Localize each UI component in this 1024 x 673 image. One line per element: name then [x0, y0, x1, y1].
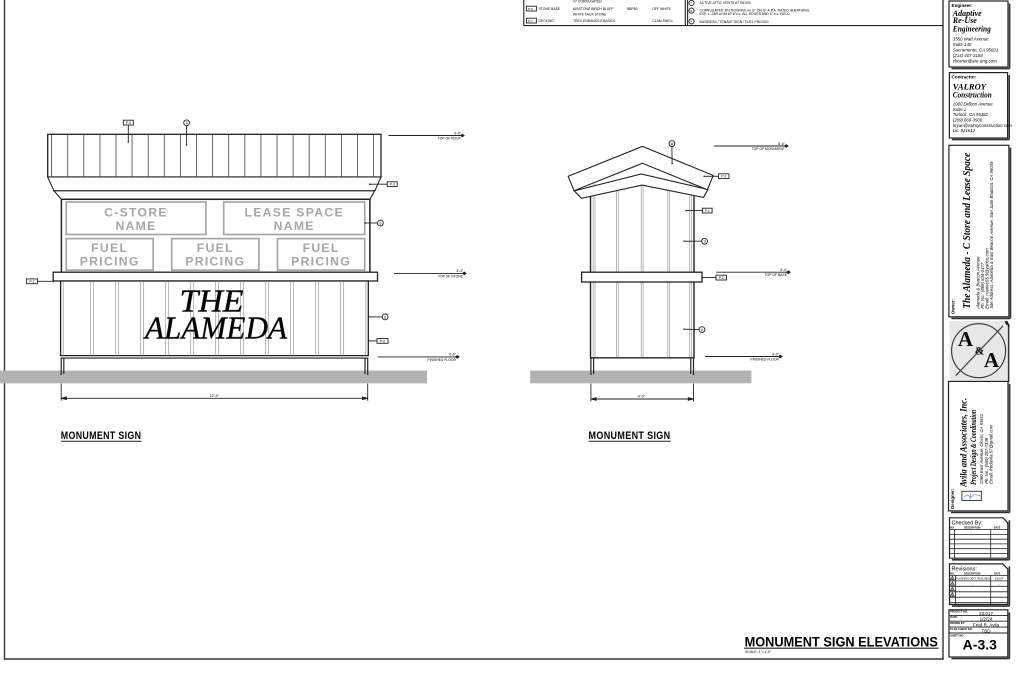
- svg-text:Email: fredavila.57@gmail.com: Email: fredavila.57@gmail.com: [989, 424, 994, 484]
- svg-text:DESCRIPTION: DESCRIPTION: [964, 527, 981, 530]
- svg-text:23.017: 23.017: [979, 611, 993, 616]
- svg-text:The Alameda - C Store and Leas: The Alameda - C Store and Lease Space: [962, 153, 973, 309]
- svg-text:STONE BASE: STONE BASE: [539, 7, 561, 11]
- svg-text:½" CORRUGATED: ½" CORRUGATED: [573, 0, 602, 4]
- svg-text:FINISHED FLOOR: FINISHED FLOOR: [751, 357, 780, 361]
- svg-text:P-1: P-1: [705, 209, 710, 213]
- svg-text:-: -: [999, 583, 1000, 586]
- svg-text:Fred R. Avila: Fred R. Avila: [973, 623, 1000, 628]
- svg-text:NO.: NO.: [950, 527, 955, 530]
- svg-text:Contractor:: Contractor:: [952, 75, 977, 80]
- svg-text:OFF WHITE: OFF WHITE: [652, 7, 671, 11]
- svg-text:Lic. 921612: Lic. 921612: [953, 128, 976, 133]
- svg-text:NAME: NAME: [115, 219, 156, 233]
- svg-text:-: -: [952, 532, 953, 535]
- svg-text:7: 7: [690, 1, 692, 5]
- svg-text:DRAWN BY:: DRAWN BY:: [950, 621, 965, 625]
- svg-text:-: -: [971, 532, 972, 535]
- svg-text:3550 Watt Avenue: 3550 Watt Avenue: [953, 36, 989, 41]
- svg-text:TREX ENHANCED BASICS: TREX ENHANCED BASICS: [573, 19, 616, 23]
- svg-text:FUEL: FUEL: [303, 241, 340, 255]
- svg-text:3'-4": 3'-4": [456, 269, 464, 273]
- svg-text:PROJECT NO.: PROJECT NO.: [950, 609, 968, 613]
- svg-text:9: 9: [379, 221, 381, 225]
- svg-text:(214) 407-3184: (214) 407-3184: [953, 53, 984, 58]
- svg-text:12'-0": 12'-0": [210, 394, 220, 398]
- svg-text:P-6: P-6: [528, 7, 533, 11]
- svg-text:Engineer:: Engineer:: [952, 3, 974, 8]
- svg-text:FINISHED FLOOR: FINISHED FLOOR: [428, 358, 457, 362]
- svg-text:LEASE SPACE: LEASE SPACE: [244, 206, 343, 220]
- svg-text:Construction: Construction: [953, 89, 992, 99]
- svg-text:6: 6: [701, 328, 703, 332]
- svg-text:DECKING: DECKING: [539, 19, 555, 23]
- svg-text:TBD: TBD: [981, 628, 991, 633]
- svg-text:P-2: P-2: [719, 276, 724, 280]
- svg-text:A-3.3: A-3.3: [963, 636, 997, 652]
- svg-text:-: -: [973, 583, 974, 586]
- svg-text:P-2: P-2: [30, 280, 35, 284]
- svg-text:Turlock, CA 95382: Turlock, CA 95382: [953, 112, 989, 117]
- svg-text:Designer:: Designer:: [950, 488, 955, 509]
- svg-text:9: 9: [704, 240, 706, 244]
- svg-text:9'-6": 9'-6": [454, 131, 462, 135]
- svg-text:P-3: P-3: [390, 183, 395, 187]
- svg-text:1000 Delbon Avenue: 1000 Delbon Avenue: [953, 102, 994, 107]
- svg-text:P-7: P-7: [528, 19, 533, 23]
- svg-text:Site Address: Alameda & East B: Site Address: Alameda & East Beacon Aven…: [989, 161, 994, 309]
- svg-text:0'-0": 0'-0": [449, 353, 457, 357]
- svg-text:chorner@are-eng.com: chorner@are-eng.com: [953, 58, 997, 63]
- svg-text:TOP OF ROOF: TOP OF ROOF: [438, 136, 461, 140]
- svg-text:-: -: [998, 532, 999, 535]
- svg-text:1/2/24: 1/2/24: [980, 617, 993, 622]
- svg-text:WHITE FAUX STONE: WHITE FAUX STONE: [573, 12, 607, 16]
- svg-text:MONUMENT SIGN ELEVATIONS: MONUMENT SIGN ELEVATIONS: [745, 634, 938, 649]
- svg-text:TOP OF STONE: TOP OF STONE: [438, 274, 464, 278]
- svg-text:8: 8: [671, 142, 673, 146]
- svg-text:P-6: P-6: [380, 339, 385, 343]
- svg-text:Engineering: Engineering: [952, 25, 991, 34]
- svg-text:DATE:: DATE:: [950, 615, 958, 619]
- svg-text:TOP OF BASE: TOP OF BASE: [765, 273, 788, 277]
- svg-text:MONUMENT SIGN: MONUMENT SIGN: [589, 430, 671, 442]
- svg-text:bryan@valroyconstruction.com: bryan@valroyconstruction.com: [953, 123, 1012, 128]
- svg-text:C-STORE: C-STORE: [104, 206, 168, 220]
- svg-text:2/29/24: 2/29/24: [995, 577, 1004, 580]
- svg-text:PRICING: PRICING: [291, 254, 351, 268]
- svg-text:DESCRIPTION: DESCRIPTION: [964, 572, 981, 575]
- svg-text:3'-4": 3'-4": [780, 268, 788, 272]
- svg-text:8: 8: [186, 121, 188, 125]
- svg-text:Suite 1: Suite 1: [953, 107, 967, 112]
- svg-text:Suite 140: Suite 140: [953, 42, 972, 47]
- svg-text:Avila and Associates, Inc.: Avila and Associates, Inc.: [959, 398, 970, 488]
- svg-text:CLAM SHELL: CLAM SHELL: [652, 19, 673, 23]
- svg-text:P-3: P-3: [721, 175, 726, 179]
- svg-text:ACTIVE ATTIC VENTS AT RIDGE: ACTIVE ATTIC VENTS AT RIDGE: [700, 1, 752, 5]
- svg-text:9: 9: [690, 20, 692, 24]
- svg-text:Owner:: Owner:: [950, 299, 955, 315]
- svg-text:8: 8: [690, 9, 692, 13]
- svg-text:0'-0": 0'-0": [772, 352, 780, 356]
- svg-text:PLANNING DEPT. REDLINES: PLANNING DEPT. REDLINES: [956, 577, 990, 580]
- svg-text:MONUMENT SIGN: MONUMENT SIGN: [61, 430, 142, 442]
- svg-text:TOP OF MONUMENT: TOP OF MONUMENT: [752, 147, 785, 151]
- svg-text:NO.: NO.: [950, 572, 955, 575]
- svg-text:(209) 669-3500: (209) 669-3500: [953, 118, 983, 123]
- svg-text:BUSINESS / TENANT SIGN / FUEL: BUSINESS / TENANT SIGN / FUEL PRICING: [700, 20, 769, 24]
- svg-text:8'-6": 8'-6": [778, 142, 786, 146]
- svg-text:6: 6: [384, 315, 386, 319]
- svg-text:PRICING: PRICING: [80, 254, 140, 268]
- svg-text:AIRSTONE BIRCH BLUFF: AIRSTONE BIRCH BLUFF: [573, 7, 613, 11]
- svg-text:PRICING: PRICING: [185, 254, 245, 268]
- svg-text:NAME: NAME: [274, 219, 315, 233]
- svg-text:A: A: [958, 327, 974, 351]
- svg-text:FUEL: FUEL: [91, 241, 128, 255]
- svg-text:BBP50: BBP50: [627, 7, 638, 11]
- svg-text:P-5: P-5: [126, 121, 131, 125]
- svg-text:DATE: DATE: [994, 527, 1001, 530]
- svg-text:ALAMEDA: ALAMEDA: [143, 310, 287, 346]
- svg-text:Sacramento, CA 95821: Sacramento, CA 95821: [953, 47, 999, 52]
- svg-text:Project Design & Coordination: Project Design & Coordination: [969, 410, 978, 485]
- svg-text:FUEL: FUEL: [197, 241, 234, 255]
- svg-text:4'-0": 4'-0": [638, 394, 646, 398]
- svg-text:SCALE: 1"=1'-0": SCALE: 1"=1'-0": [745, 650, 772, 654]
- svg-text:PLAN CHECK NO.: PLAN CHECK NO.: [950, 627, 973, 631]
- svg-text:A: A: [984, 348, 1000, 372]
- svg-text:EXP. 1, 24/0 w/ 8d AT 6"o.c. A: EXP. 1, 24/0 w/ 8d AT 6"o.c. ALL EDGES A…: [700, 12, 791, 16]
- svg-text:DATE: DATE: [994, 572, 1001, 575]
